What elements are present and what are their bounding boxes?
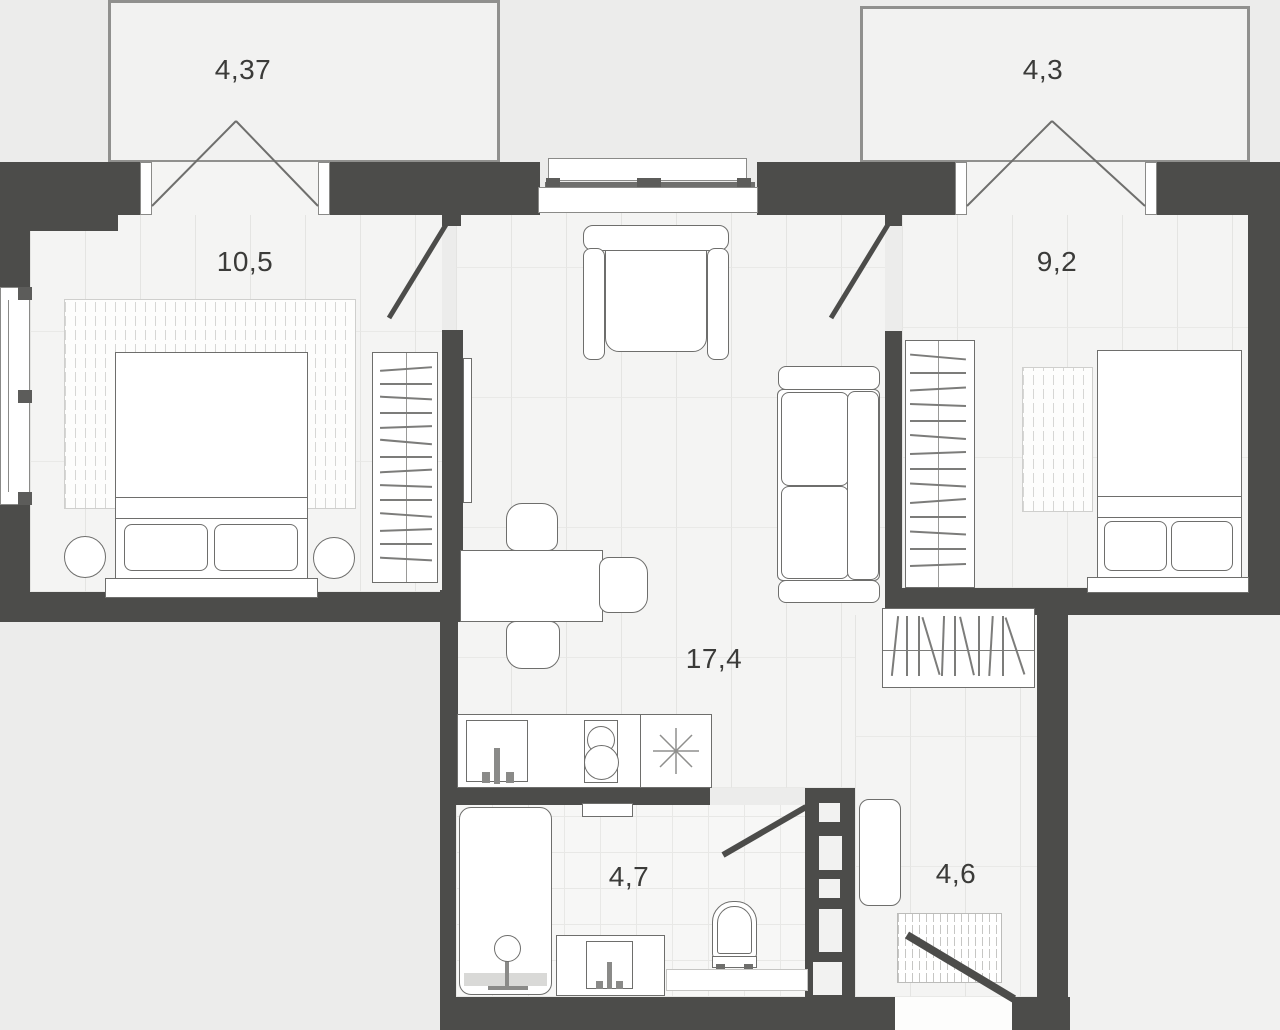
balcony-left-swing-b [236, 121, 318, 206]
balcony-right-swing-a [967, 121, 1052, 206]
door-leaf-bedroom-right [831, 223, 889, 318]
balcony-left-swing-a [152, 121, 236, 206]
door-leaf-entrance [907, 935, 1014, 999]
door-leaf-bathroom [723, 807, 806, 855]
room-label-bathroom: 4,7 [609, 861, 649, 893]
door-leaf-bedroom-left [389, 223, 447, 318]
room-label-balcony-right: 4,3 [1023, 54, 1063, 86]
balcony-right-swing-b [1052, 121, 1145, 206]
room-label-bedroom-left: 10,5 [217, 246, 274, 278]
room-label-bedroom-right: 9,2 [1037, 246, 1077, 278]
room-label-balcony-left: 4,37 [215, 54, 272, 86]
room-label-hallway: 4,6 [936, 858, 976, 890]
fridge-snowflake-icon [653, 728, 699, 774]
room-label-living: 17,4 [686, 643, 743, 675]
floor-plan: 4,37 10,5 17,4 4,7 4,6 9,2 4,3 [0, 0, 1280, 1030]
